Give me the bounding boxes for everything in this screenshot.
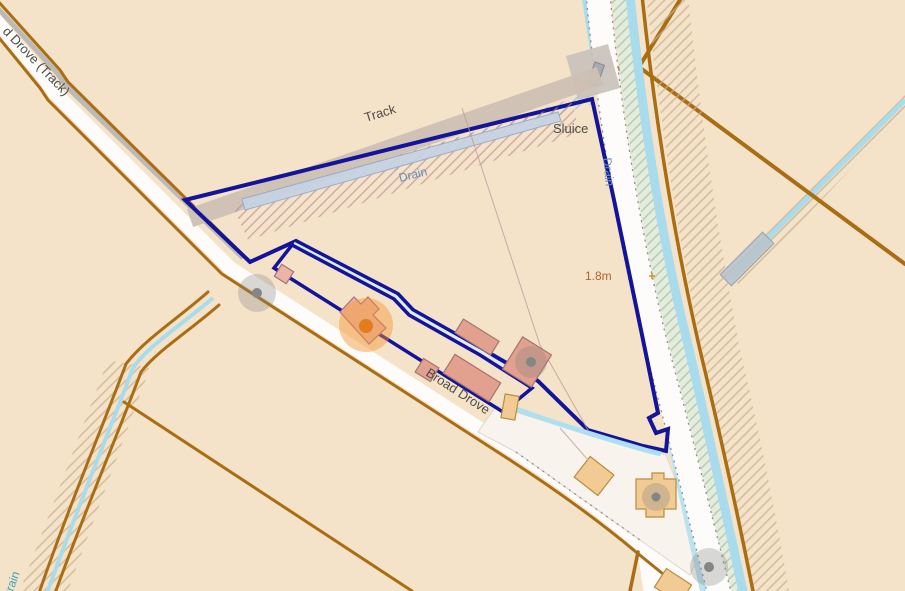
poi-dot	[652, 493, 661, 502]
gray-poi-marker	[642, 483, 670, 511]
poi-dot	[526, 357, 536, 367]
gray-poi-marker	[690, 548, 728, 586]
map-viewport[interactable]: d Drove (Track) Track Drain Sluice Drain…	[0, 0, 905, 591]
sluice-label: Sluice	[553, 121, 588, 136]
poi-dot	[359, 319, 373, 333]
poi-dot	[704, 562, 714, 572]
spot-height-label: 1.8m	[585, 269, 612, 283]
orange-poi-marker	[339, 298, 393, 352]
gray-poi-marker	[238, 274, 276, 312]
poi-dot	[252, 288, 262, 298]
gray-poi-marker	[515, 346, 547, 378]
map-canvas[interactable]: d Drove (Track) Track Drain Sluice Drain…	[0, 0, 905, 591]
drain-label-right: Drain	[600, 157, 617, 187]
